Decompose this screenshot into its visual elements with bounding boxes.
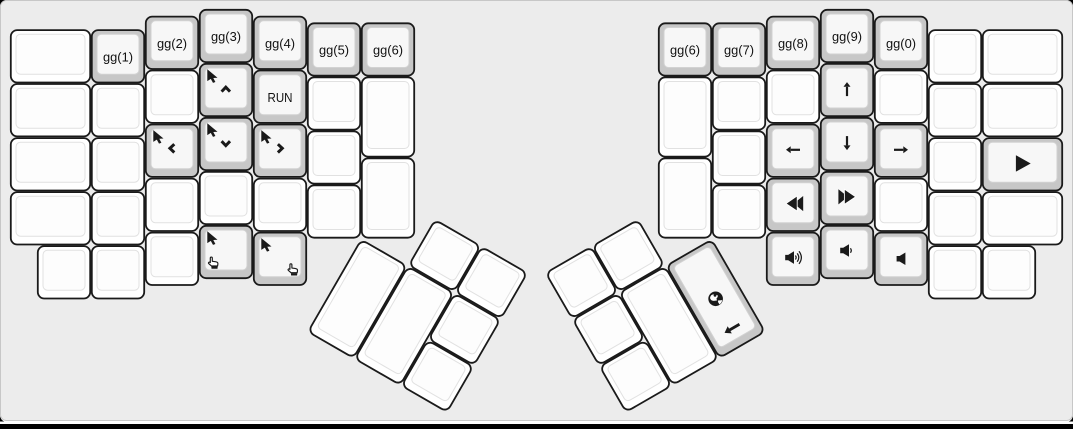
svg-text:gg(6): gg(6) [373,43,403,58]
svg-text:gg(8): gg(8) [778,36,808,51]
svg-text:gg(9): gg(9) [832,29,862,44]
svg-text:gg(0): gg(0) [886,36,916,51]
svg-text:gg(2): gg(2) [157,36,187,51]
svg-text:gg(5): gg(5) [319,43,349,58]
svg-text:RUN: RUN [268,91,293,105]
svg-text:gg(3): gg(3) [211,29,241,44]
svg-text:gg(1): gg(1) [103,49,133,64]
svg-text:gg(6): gg(6) [670,43,700,58]
svg-text:gg(4): gg(4) [265,36,295,51]
svg-text:gg(7): gg(7) [724,43,754,58]
